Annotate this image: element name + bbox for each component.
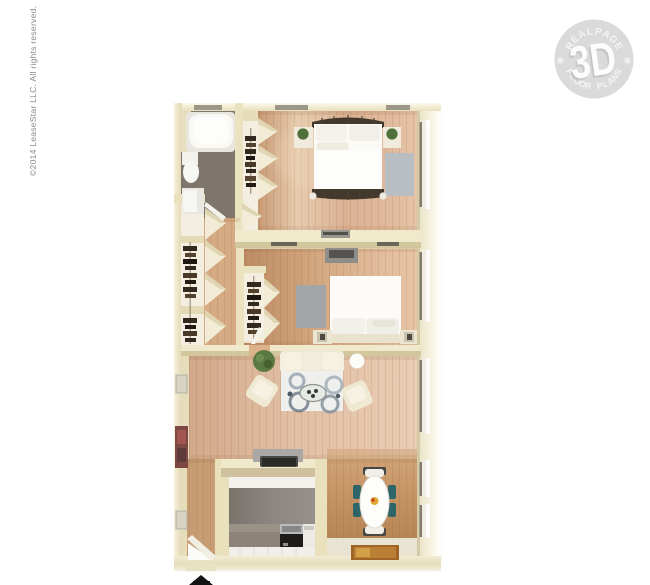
svg-text:3D: 3D: [567, 32, 620, 89]
svg-text:©2014 LeaseStar LLC. All right: ©2014 LeaseStar LLC. All rights reserved…: [28, 6, 38, 176]
